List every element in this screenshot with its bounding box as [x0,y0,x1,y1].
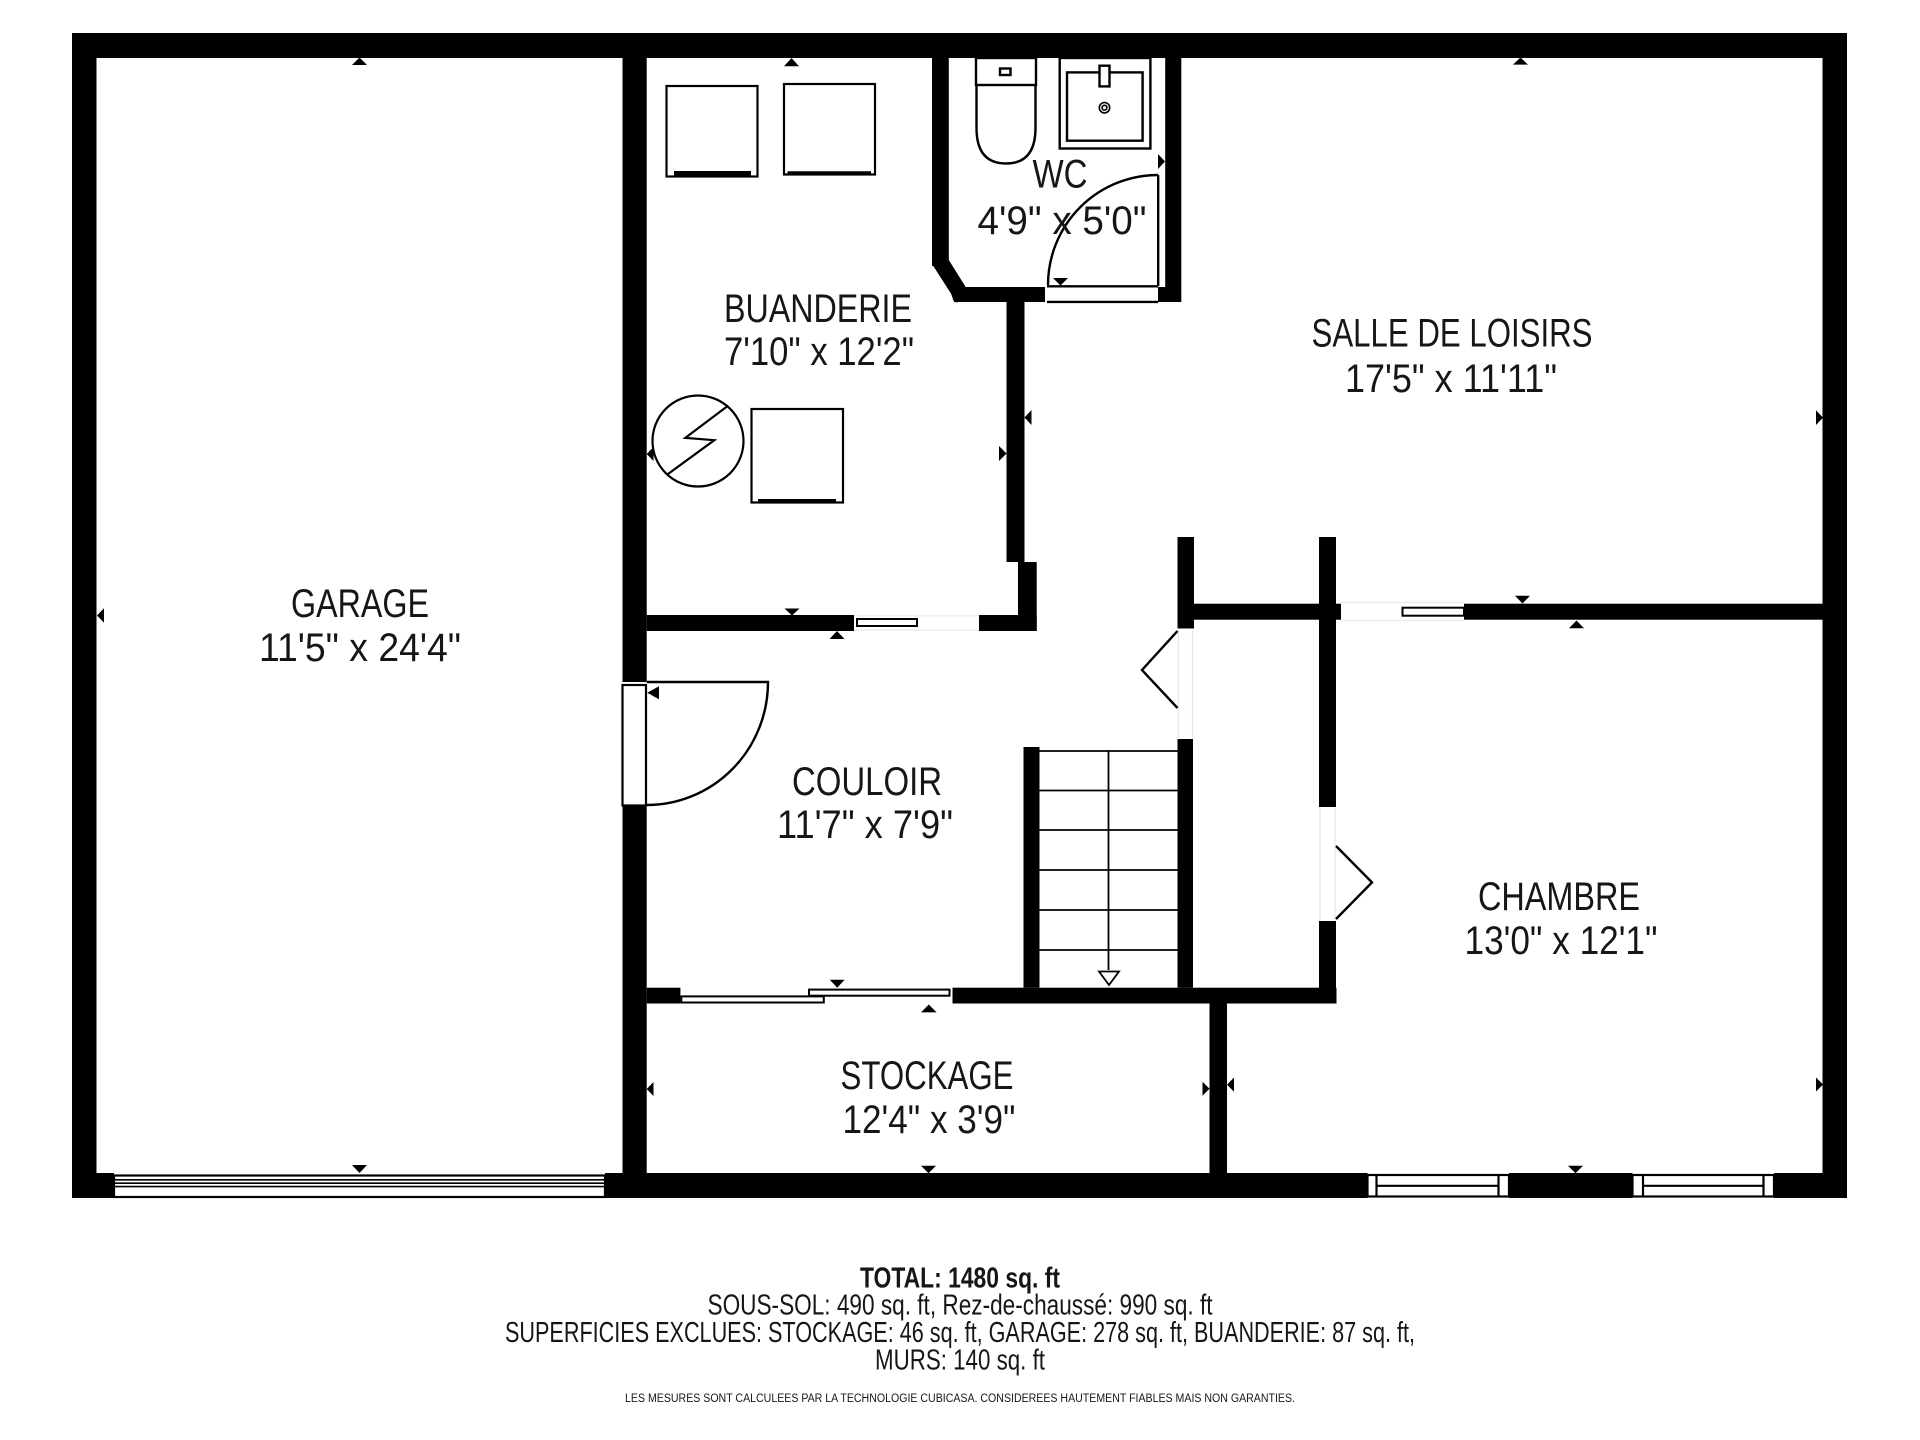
svg-text:12'4" x 3'9": 12'4" x 3'9" [843,1098,1016,1142]
svg-text:7'10" x 12'2": 7'10" x 12'2" [724,330,914,374]
svg-text:MURS: 140 sq. ft: MURS: 140 sq. ft [875,1345,1045,1377]
svg-text:13'0" x 12'1": 13'0" x 12'1" [1465,919,1658,963]
svg-text:BUANDERIE: BUANDERIE [724,287,912,331]
svg-text:STOCKAGE: STOCKAGE [841,1054,1014,1098]
svg-text:WC: WC [1033,153,1088,197]
svg-text:GARAGE: GARAGE [291,582,429,626]
svg-text:11'7" x 7'9": 11'7" x 7'9" [777,803,953,847]
svg-text:CHAMBRE: CHAMBRE [1478,875,1640,919]
svg-text:17'5" x 11'11": 17'5" x 11'11" [1345,357,1557,401]
svg-text:COULOIR: COULOIR [792,760,942,804]
svg-text:SALLE DE LOISIRS: SALLE DE LOISIRS [1312,312,1593,356]
svg-text:4'9" x 5'0": 4'9" x 5'0" [978,199,1147,243]
svg-text:LES MESURES SONT CALCULEES PAR: LES MESURES SONT CALCULEES PAR LA TECHNO… [625,1391,1295,1405]
svg-text:11'5" x 24'4": 11'5" x 24'4" [259,626,461,670]
